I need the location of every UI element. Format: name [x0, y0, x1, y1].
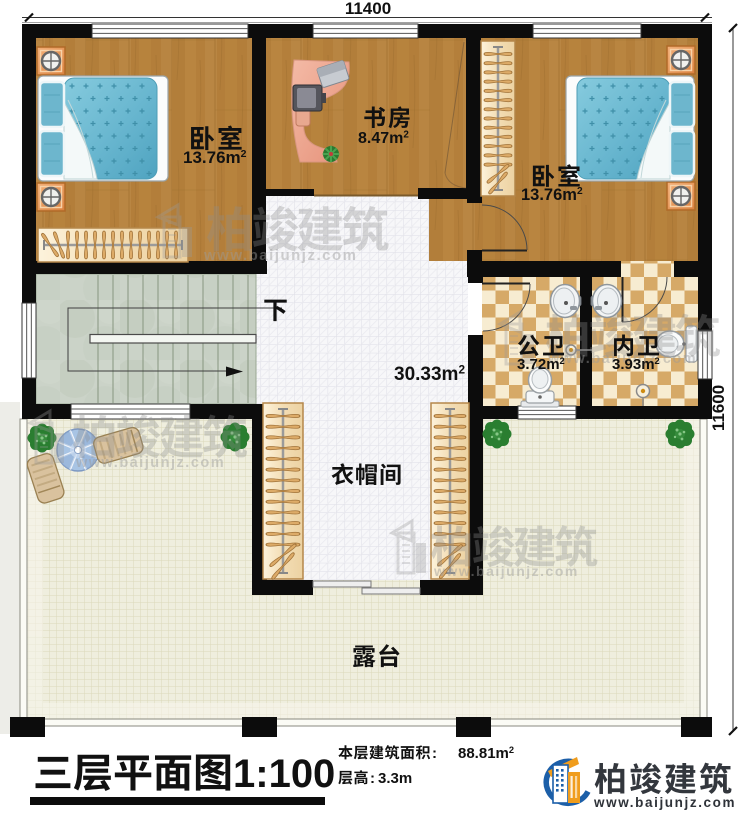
- svg-text:www.baijunjz.com: www.baijunjz.com: [75, 455, 225, 471]
- svg-text:3.3m: 3.3m: [378, 770, 412, 787]
- svg-text:www.baijunjz.com: www.baijunjz.com: [203, 247, 357, 264]
- svg-text:3.93m2: 3.93m2: [612, 356, 660, 373]
- svg-text:www.baijunjz.com: www.baijunjz.com: [593, 795, 736, 810]
- svg-text:11400: 11400: [345, 0, 391, 18]
- svg-text:30.33m2: 30.33m2: [394, 362, 465, 385]
- svg-text:www.baijunjz.com: www.baijunjz.com: [433, 563, 579, 579]
- svg-text:88.81m2: 88.81m2: [458, 745, 514, 762]
- svg-text::: :: [432, 745, 437, 762]
- svg-text:8.47m2: 8.47m2: [358, 129, 409, 147]
- svg-text::: :: [370, 770, 375, 787]
- svg-text:3.72m2: 3.72m2: [517, 356, 565, 373]
- svg-text:1:100: 1:100: [233, 752, 335, 796]
- svg-text:13.76m2: 13.76m2: [183, 148, 247, 167]
- svg-text:11600: 11600: [709, 385, 728, 431]
- svg-text:13.76m2: 13.76m2: [521, 186, 583, 204]
